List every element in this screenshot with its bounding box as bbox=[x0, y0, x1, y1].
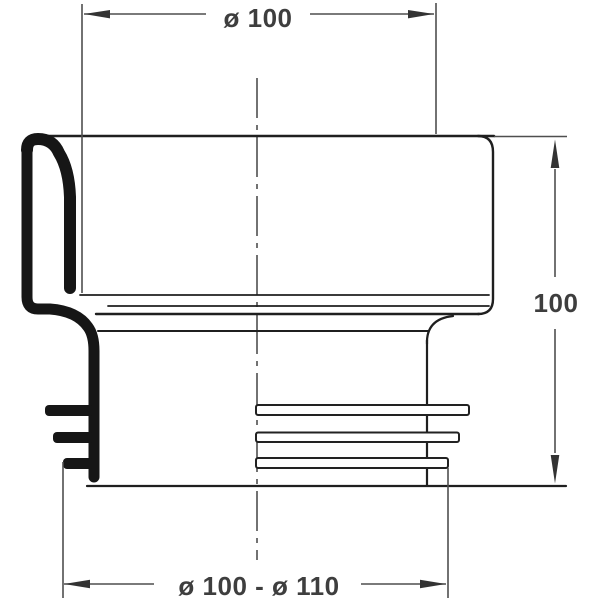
sealing-rib bbox=[256, 405, 469, 415]
dimension-bottom-diameter-range: ø 100 - ø 110 bbox=[63, 462, 448, 600]
dimension-arrow-right bbox=[420, 580, 446, 588]
spigot-fillet bbox=[427, 316, 453, 344]
dimension-arrow-left bbox=[84, 10, 110, 18]
rubber-seal-section bbox=[27, 139, 94, 477]
seal-inner-lip bbox=[27, 139, 70, 288]
sealing-ribs-right bbox=[256, 405, 469, 468]
dimension-arrow-left bbox=[64, 580, 90, 588]
sealing-fin bbox=[63, 458, 94, 469]
flange-right-edge bbox=[478, 136, 493, 314]
dimension-arrow-down bbox=[551, 455, 560, 484]
bottom-diameter-dimension-label: ø 100 - ø 110 bbox=[178, 571, 339, 600]
technical-drawing: ø 100 100 ø 100 - ø 110 bbox=[0, 0, 600, 600]
dimension-arrow-up bbox=[551, 140, 560, 169]
sealing-rib bbox=[256, 433, 459, 443]
top-diameter-dimension-label: ø 100 bbox=[224, 3, 293, 33]
height-dimension-label: 100 bbox=[534, 288, 579, 318]
sealing-fin bbox=[53, 432, 94, 443]
seal-outer-wall bbox=[27, 150, 94, 477]
dimension-arrow-right bbox=[408, 10, 434, 18]
sealing-rib bbox=[256, 458, 448, 468]
sealing-fin bbox=[45, 405, 94, 416]
dimension-height: 100 bbox=[494, 137, 578, 484]
dimension-top-diameter: ø 100 bbox=[82, 3, 436, 293]
